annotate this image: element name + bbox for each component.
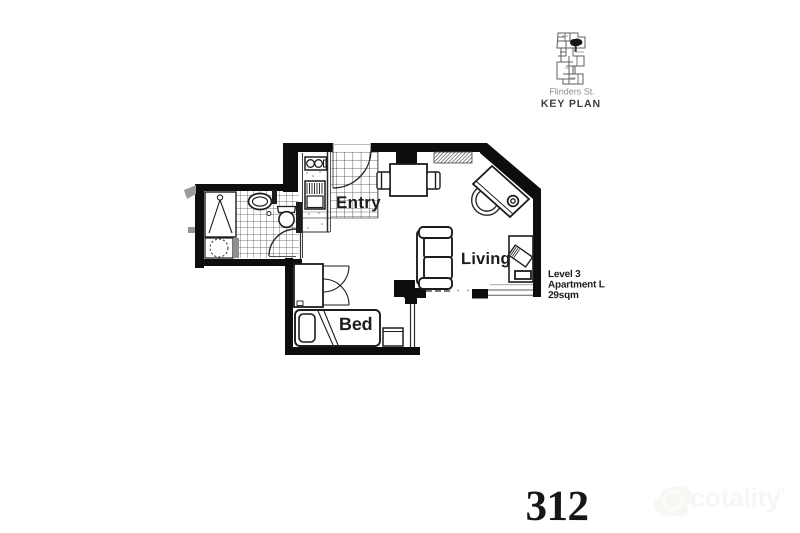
svg-text:312: 312 <box>525 483 588 530</box>
svg-text:Living: Living <box>461 250 511 268</box>
svg-text:29sqm: 29sqm <box>548 290 579 301</box>
svg-text:Level 3: Level 3 <box>548 269 581 280</box>
svg-text:Flinders St.: Flinders St. <box>549 86 595 96</box>
svg-text:Entry: Entry <box>336 193 381 212</box>
svg-text:KEY PLAN: KEY PLAN <box>541 98 601 110</box>
svg-text:cotality: cotality <box>690 483 781 513</box>
svg-text:Apartment L: Apartment L <box>548 279 605 290</box>
svg-text:Bed: Bed <box>339 314 373 334</box>
svg-text:TM: TM <box>773 486 785 495</box>
